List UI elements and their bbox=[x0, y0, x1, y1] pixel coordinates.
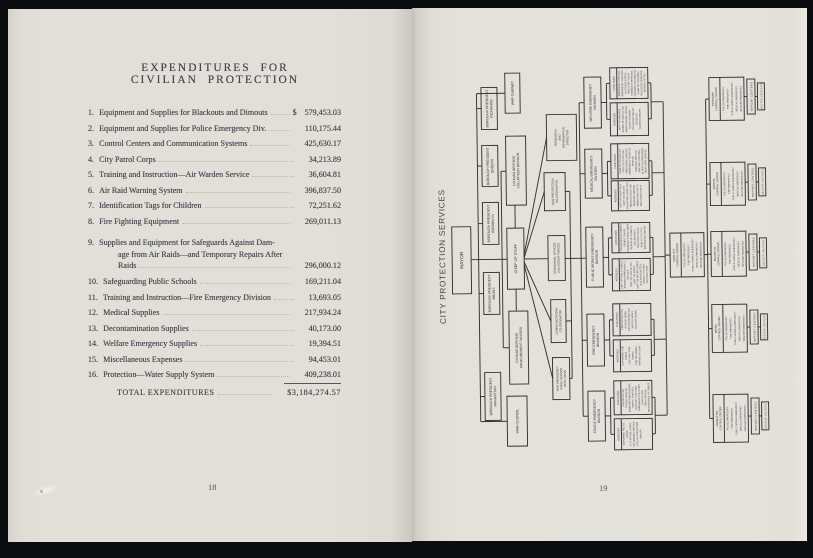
svg-text:DEPT OF HOSPITALS: DEPT OF HOSPITALS bbox=[619, 184, 622, 208]
svg-text:SALVATION ARMY: SALVATION ARMY bbox=[628, 109, 631, 129]
svg-text:EMERGENCY FEEDING: EMERGENCY FEEDING bbox=[619, 70, 621, 96]
svg-text:DEPT OF PUBLIC WORKS: DEPT OF PUBLIC WORKS bbox=[621, 260, 623, 289]
svg-text:UNIFORMED POLICE: UNIFORMED POLICE bbox=[623, 422, 625, 445]
svg-text:MARINE DIVISION: MARINE DIVISION bbox=[638, 345, 641, 365]
svg-text:WELFARE EMERGENCY: WELFARE EMERGENCY bbox=[741, 240, 744, 267]
svg-text:MEDICAL EMERGENCY: MEDICAL EMERGENCY bbox=[735, 85, 738, 111]
svg-text:CONTROL CENTER: CONTROL CENTER bbox=[715, 172, 719, 196]
svg-text:WELFARE EMERGENCY: WELFARE EMERGENCY bbox=[742, 314, 745, 341]
svg-text:BROOKLYN: BROOKLYN bbox=[491, 214, 495, 233]
svg-text:SANITARY CONTROL: SANITARY CONTROL bbox=[638, 149, 641, 173]
svg-text:FUNCTIONS: FUNCTIONS bbox=[614, 154, 617, 169]
svg-text:PROCUREMENT DIVISION: PROCUREMENT DIVISION bbox=[519, 326, 524, 368]
svg-text:VOLUNTEER FORCES: VOLUNTEER FORCES bbox=[556, 243, 560, 274]
svg-text:MEDICAL EMERGENCY: MEDICAL EMERGENCY bbox=[736, 170, 739, 196]
svg-text:FIRE EMERGENCY: FIRE EMERGENCY bbox=[727, 88, 729, 109]
svg-text:FIRE WATCHERS: FIRE WATCHERS bbox=[635, 346, 638, 365]
svg-text:CITY PATROL CORPS: CITY PATROL CORPS bbox=[629, 422, 632, 446]
svg-text:DEPT OF PARKS: DEPT OF PARKS bbox=[633, 265, 636, 284]
svg-text:DEMOLITION OF: DEMOLITION OF bbox=[624, 228, 626, 247]
svg-text:MAYOR: MAYOR bbox=[459, 251, 465, 269]
svg-text:MORTUARY SERVICE: MORTUARY SERVICE bbox=[644, 149, 647, 173]
svg-text:SECTOR CENTERS: SECTOR CENTERS bbox=[762, 240, 765, 266]
svg-text:RADIO PATROL: RADIO PATROL bbox=[644, 388, 647, 406]
svg-text:REPORT CENTERS: REPORT CENTERS bbox=[750, 167, 754, 197]
svg-text:PUBLIC WORKS EMERGENCY: PUBLIC WORKS EMERGENCY bbox=[692, 238, 694, 272]
svg-text:AUXILIARY FIRE: AUXILIARY FIRE bbox=[628, 346, 631, 364]
svg-text:BRONX: BRONX bbox=[492, 287, 496, 300]
svg-text:POLICE EMERGENCY: POLICE EMERGENCY bbox=[726, 316, 728, 340]
svg-text:REPORT CENTERS: REPORT CENTERS bbox=[754, 401, 758, 431]
svg-text:MANHATTAN: MANHATTAN bbox=[493, 386, 497, 407]
svg-text:NURSING GROUPS: NURSING GROUPS bbox=[634, 184, 636, 206]
svg-text:FIRE EMERGENCY: FIRE EMERGENCY bbox=[732, 407, 734, 428]
svg-text:DIVISION: DIVISION bbox=[596, 332, 600, 347]
svg-text:POLICE EMERGENCY: POLICE EMERGENCY bbox=[725, 241, 727, 265]
svg-text:RELIGIOUS SERVICES: RELIGIOUS SERVICES bbox=[641, 70, 643, 95]
svg-text:AGENCIES: AGENCIES bbox=[614, 189, 617, 202]
svg-text:BOARD OF EDUCATION: BOARD OF EDUCATION bbox=[622, 106, 625, 132]
svg-text:WELFARE EMERGENCY: WELFARE EMERGENCY bbox=[744, 404, 747, 431]
svg-text:AMBULANCE SERVICE: AMBULANCE SERVICE bbox=[625, 148, 628, 173]
svg-text:SERVICE: SERVICE bbox=[633, 156, 635, 167]
svg-text:BOMB RECONNAISSANCE: BOMB RECONNAISSANCE bbox=[628, 383, 631, 412]
svg-text:DEPT OF HEALTH: DEPT OF HEALTH bbox=[623, 186, 626, 206]
svg-text:WELFARE EMERGENCY: WELFARE EMERGENCY bbox=[741, 170, 744, 197]
svg-text:GROUPS: GROUPS bbox=[640, 429, 642, 439]
svg-text:PUBLIC WORKS EMERGENCY: PUBLIC WORKS EMERGENCY bbox=[733, 167, 735, 201]
svg-text:DIVISION: DIVISION bbox=[593, 95, 597, 110]
svg-text:DEPT OF SANITATION: DEPT OF SANITATION bbox=[630, 262, 633, 286]
svg-text:FORCE: FORCE bbox=[626, 351, 628, 360]
svg-text:AMBULANCE UNITS: AMBULANCE UNITS bbox=[636, 184, 639, 206]
svg-text:FUNCTIONS: FUNCTIONS bbox=[616, 312, 619, 327]
svg-text:OFFICES: OFFICES bbox=[628, 269, 630, 279]
svg-text:MEDICAL EMERGENCY: MEDICAL EMERGENCY bbox=[695, 241, 698, 267]
svg-text:FIRE PROTECTION: FIRE PROTECTION bbox=[622, 309, 624, 330]
svg-text:RICHMOND: RICHMOND bbox=[489, 99, 493, 118]
svg-text:PUBLIC WORKS EMERGENCY: PUBLIC WORKS EMERGENCY bbox=[735, 311, 737, 345]
svg-text:AGENCIES: AGENCIES bbox=[615, 268, 618, 281]
svg-text:FIRE EMERGENCY: FIRE EMERGENCY bbox=[729, 243, 731, 264]
svg-text:AGENCIES: AGENCIES bbox=[635, 113, 638, 125]
svg-text:VOLUNTARY RELIEF: VOLUNTARY RELIEF bbox=[632, 107, 635, 130]
svg-text:AND BRIDGES: AND BRIDGES bbox=[633, 229, 636, 245]
svg-text:CONTRACTORS: CONTRACTORS bbox=[646, 265, 649, 283]
svg-text:PUBLIC WORKS EMERGENCY: PUBLIC WORKS EMERGENCY bbox=[736, 401, 738, 435]
svg-text:AGENCIES: AGENCIES bbox=[613, 112, 616, 125]
svg-text:EMERGENCY HOSPITAL: EMERGENCY HOSPITAL bbox=[628, 147, 631, 174]
svg-text:NURSING SERVICE: NURSING SERVICE bbox=[636, 150, 638, 172]
svg-text:DECONTAMINATION: DECONTAMINATION bbox=[628, 308, 631, 330]
svg-text:EMERGENCY DETOURS: EMERGENCY DETOURS bbox=[639, 384, 641, 411]
svg-text:MEDICAL EMERGENCY: MEDICAL EMERGENCY bbox=[737, 240, 740, 266]
svg-text:CHIEF OF STAFF: CHIEF OF STAFF bbox=[514, 243, 518, 273]
svg-text:RED CROSS UNITS: RED CROSS UNITS bbox=[641, 184, 643, 206]
svg-text:CLEARANCE OF DEBRIS: CLEARANCE OF DEBRIS bbox=[620, 224, 623, 252]
svg-text:GAS AND ELECTRIC: GAS AND ELECTRIC bbox=[639, 263, 642, 286]
svg-text:RESTORATION OF: RESTORATION OF bbox=[637, 227, 640, 248]
svg-text:SALVAGE CORPS: SALVAGE CORPS bbox=[634, 309, 637, 329]
svg-text:CHURCH GROUPS: CHURCH GROUPS bbox=[640, 108, 642, 129]
svg-text:CONTROL CENTER: CONTROL CENTER bbox=[717, 316, 721, 340]
svg-text:BOROUGH PRESIDENTS: BOROUGH PRESIDENTS bbox=[624, 261, 626, 289]
svg-text:CONTROL CENTER: CONTROL CENTER bbox=[714, 87, 718, 111]
svg-text:POLICE EMERGENCY: POLICE EMERGENCY bbox=[724, 171, 726, 195]
svg-text:SECTOR CENTERS: SECTOR CENTERS bbox=[760, 83, 763, 109]
svg-text:PUBLIC WORKS EMERGENCY: PUBLIC WORKS EMERGENCY bbox=[732, 82, 734, 116]
svg-text:PUBLIC WORKS EMERGENCY: PUBLIC WORKS EMERGENCY bbox=[734, 237, 736, 271]
svg-text:INFORMATION SERVICE: INFORMATION SERVICE bbox=[634, 69, 637, 96]
svg-text:EMERGENCY WATER: EMERGENCY WATER bbox=[644, 225, 647, 249]
svg-text:EVACUATION: EVACUATION bbox=[641, 390, 644, 405]
svg-text:AGENCIES: AGENCIES bbox=[616, 349, 619, 362]
svg-text:REPAIR OF STREETS: REPAIR OF STREETS bbox=[630, 225, 633, 249]
svg-text:POLICE EMERGENCY: POLICE EMERGENCY bbox=[727, 406, 729, 430]
svg-text:RESCUE WORK: RESCUE WORK bbox=[625, 311, 627, 329]
svg-text:VOLUNTARY HOSPITALS: VOLUNTARY HOSPITALS bbox=[626, 182, 629, 210]
svg-text:DEPT OF WELFARE: DEPT OF WELFARE bbox=[618, 108, 621, 130]
svg-text:CO-ORDINATOR: CO-ORDINATOR bbox=[555, 179, 559, 203]
svg-text:WELFARE EMERGENCY: WELFARE EMERGENCY bbox=[699, 241, 702, 268]
svg-text:WATER SUPPLY: WATER SUPPLY bbox=[631, 310, 634, 328]
svg-text:PUBLIC UTILITIES: PUBLIC UTILITIES bbox=[641, 227, 643, 247]
svg-text:MAINTENANCE OF ORDER: MAINTENANCE OF ORDER bbox=[647, 382, 650, 412]
svg-text:REPORT CENTERS: REPORT CENTERS bbox=[752, 312, 756, 342]
svg-text:POLICE EMERGENCY: POLICE EMERGENCY bbox=[684, 242, 686, 266]
svg-text:CONTROL CENTER: CONTROL CENTER bbox=[718, 406, 722, 430]
svg-text:SECTOR CENTERS: SECTOR CENTERS bbox=[761, 169, 764, 195]
svg-text:FUNCTIONS: FUNCTIONS bbox=[617, 390, 620, 405]
svg-text:CO-ORDINATOR: CO-ORDINATOR bbox=[558, 310, 562, 332]
svg-text:DIVISION: DIVISION bbox=[597, 408, 601, 423]
svg-text:REHABILITATION: REHABILITATION bbox=[643, 73, 646, 92]
svg-text:WELFARE EMERGENCY: WELFARE EMERGENCY bbox=[739, 85, 742, 112]
svg-text:REGISTRATION OF: REGISTRATION OF bbox=[627, 72, 630, 94]
svg-text:SECTOR CENTERS: SECTOR CENTERS bbox=[764, 403, 767, 429]
svg-text:FORCE: FORCE bbox=[627, 430, 629, 439]
svg-text:FIRST AID STATIONS: FIRST AID STATIONS bbox=[622, 149, 625, 172]
svg-text:UNIFORMED FIRE: UNIFORMED FIRE bbox=[622, 345, 624, 365]
svg-text:CARE OF CHILDREN: CARE OF CHILDREN bbox=[637, 71, 640, 94]
svg-text:BLOOD PLASMA BANKS: BLOOD PLASMA BANKS bbox=[641, 147, 644, 174]
svg-text:BLACKOUT CONTROL: BLACKOUT CONTROL bbox=[635, 385, 638, 410]
svg-text:CIVILIAN VOLUNTEER: CIVILIAN VOLUNTEER bbox=[636, 422, 639, 447]
svg-text:DIVISION: DIVISION bbox=[595, 249, 599, 264]
svg-text:QUEENS: QUEENS bbox=[490, 158, 494, 173]
svg-text:CONTROL CENTER: CONTROL CENTER bbox=[675, 243, 679, 267]
svg-text:CONTROL CENTER: CONTROL CENTER bbox=[716, 242, 720, 266]
svg-text:AIR WARDEN SERVICE: AIR WARDEN SERVICE bbox=[632, 421, 635, 447]
svg-text:MEDICAL EMERGENCY: MEDICAL EMERGENCY bbox=[738, 315, 741, 341]
svg-text:FIRE EMERGENCY: FIRE EMERGENCY bbox=[688, 244, 690, 265]
svg-text:AGENCIES: AGENCIES bbox=[617, 427, 620, 440]
svg-text:WAR CABINET: WAR CABINET bbox=[511, 80, 515, 105]
svg-text:TRAFFIC CONTROL: TRAFFIC CONTROL bbox=[631, 386, 634, 408]
svg-text:DIVISION: DIVISION bbox=[594, 166, 598, 181]
svg-text:WAR COUNCIL: WAR COUNCIL bbox=[515, 409, 519, 434]
svg-text:FIRE EMERGENCY: FIRE EMERGENCY bbox=[728, 173, 730, 194]
svg-text:CITY PROTECTION SERVICES: CITY PROTECTION SERVICES bbox=[437, 189, 448, 324]
svg-text:FUNCTIONS: FUNCTIONS bbox=[615, 230, 618, 245]
svg-text:PATROL SERVICE: PATROL SERVICE bbox=[625, 387, 628, 407]
svg-text:MEDICAL EMERGENCY: MEDICAL EMERGENCY bbox=[739, 405, 742, 431]
svg-text:CARE OF CASUALTIES: CARE OF CASUALTIES bbox=[619, 148, 622, 173]
svg-text:WNYC AWVS: WNYC AWVS bbox=[563, 370, 567, 387]
svg-text:DAMAGED STRUCTURES: DAMAGED STRUCTURES bbox=[626, 223, 629, 251]
svg-text:TRANSIT SYSTEM: TRANSIT SYSTEM bbox=[643, 264, 646, 284]
svg-text:MEDICAL SOCIETIES: MEDICAL SOCIETIES bbox=[629, 184, 632, 208]
svg-text:HOMELESS PERSONS: HOMELESS PERSONS bbox=[631, 70, 633, 95]
svg-text:CORPS: CORPS bbox=[633, 351, 635, 360]
svg-text:REPORT CENTERS: REPORT CENTERS bbox=[749, 82, 753, 112]
svg-text:FUNCTIONS: FUNCTIONS bbox=[613, 76, 616, 91]
svg-text:DIRECTOR: DIRECTOR bbox=[565, 129, 569, 145]
svg-text:POLICE DUTIES: POLICE DUTIES bbox=[623, 388, 625, 406]
svg-text:CLOTHING SUPPLY: CLOTHING SUPPLY bbox=[625, 72, 627, 94]
svg-text:EMERGENCY HOUSING: EMERGENCY HOUSING bbox=[622, 70, 624, 96]
svg-text:AMERICAN RED CROSS: AMERICAN RED CROSS bbox=[625, 105, 628, 132]
svg-text:DEPT OF WATER SUPPLY: DEPT OF WATER SUPPLY bbox=[636, 260, 639, 289]
svg-text:SECTOR CENTERS: SECTOR CENTERS bbox=[763, 314, 766, 340]
svg-text:REPORT CENTERS: REPORT CENTERS bbox=[751, 237, 755, 267]
svg-text:VOLUNTEER DIVISION: VOLUNTEER DIVISION bbox=[516, 152, 520, 188]
svg-text:POLICE EMERGENCY: POLICE EMERGENCY bbox=[723, 86, 725, 110]
svg-text:FIRE EMERGENCY: FIRE EMERGENCY bbox=[730, 317, 732, 338]
